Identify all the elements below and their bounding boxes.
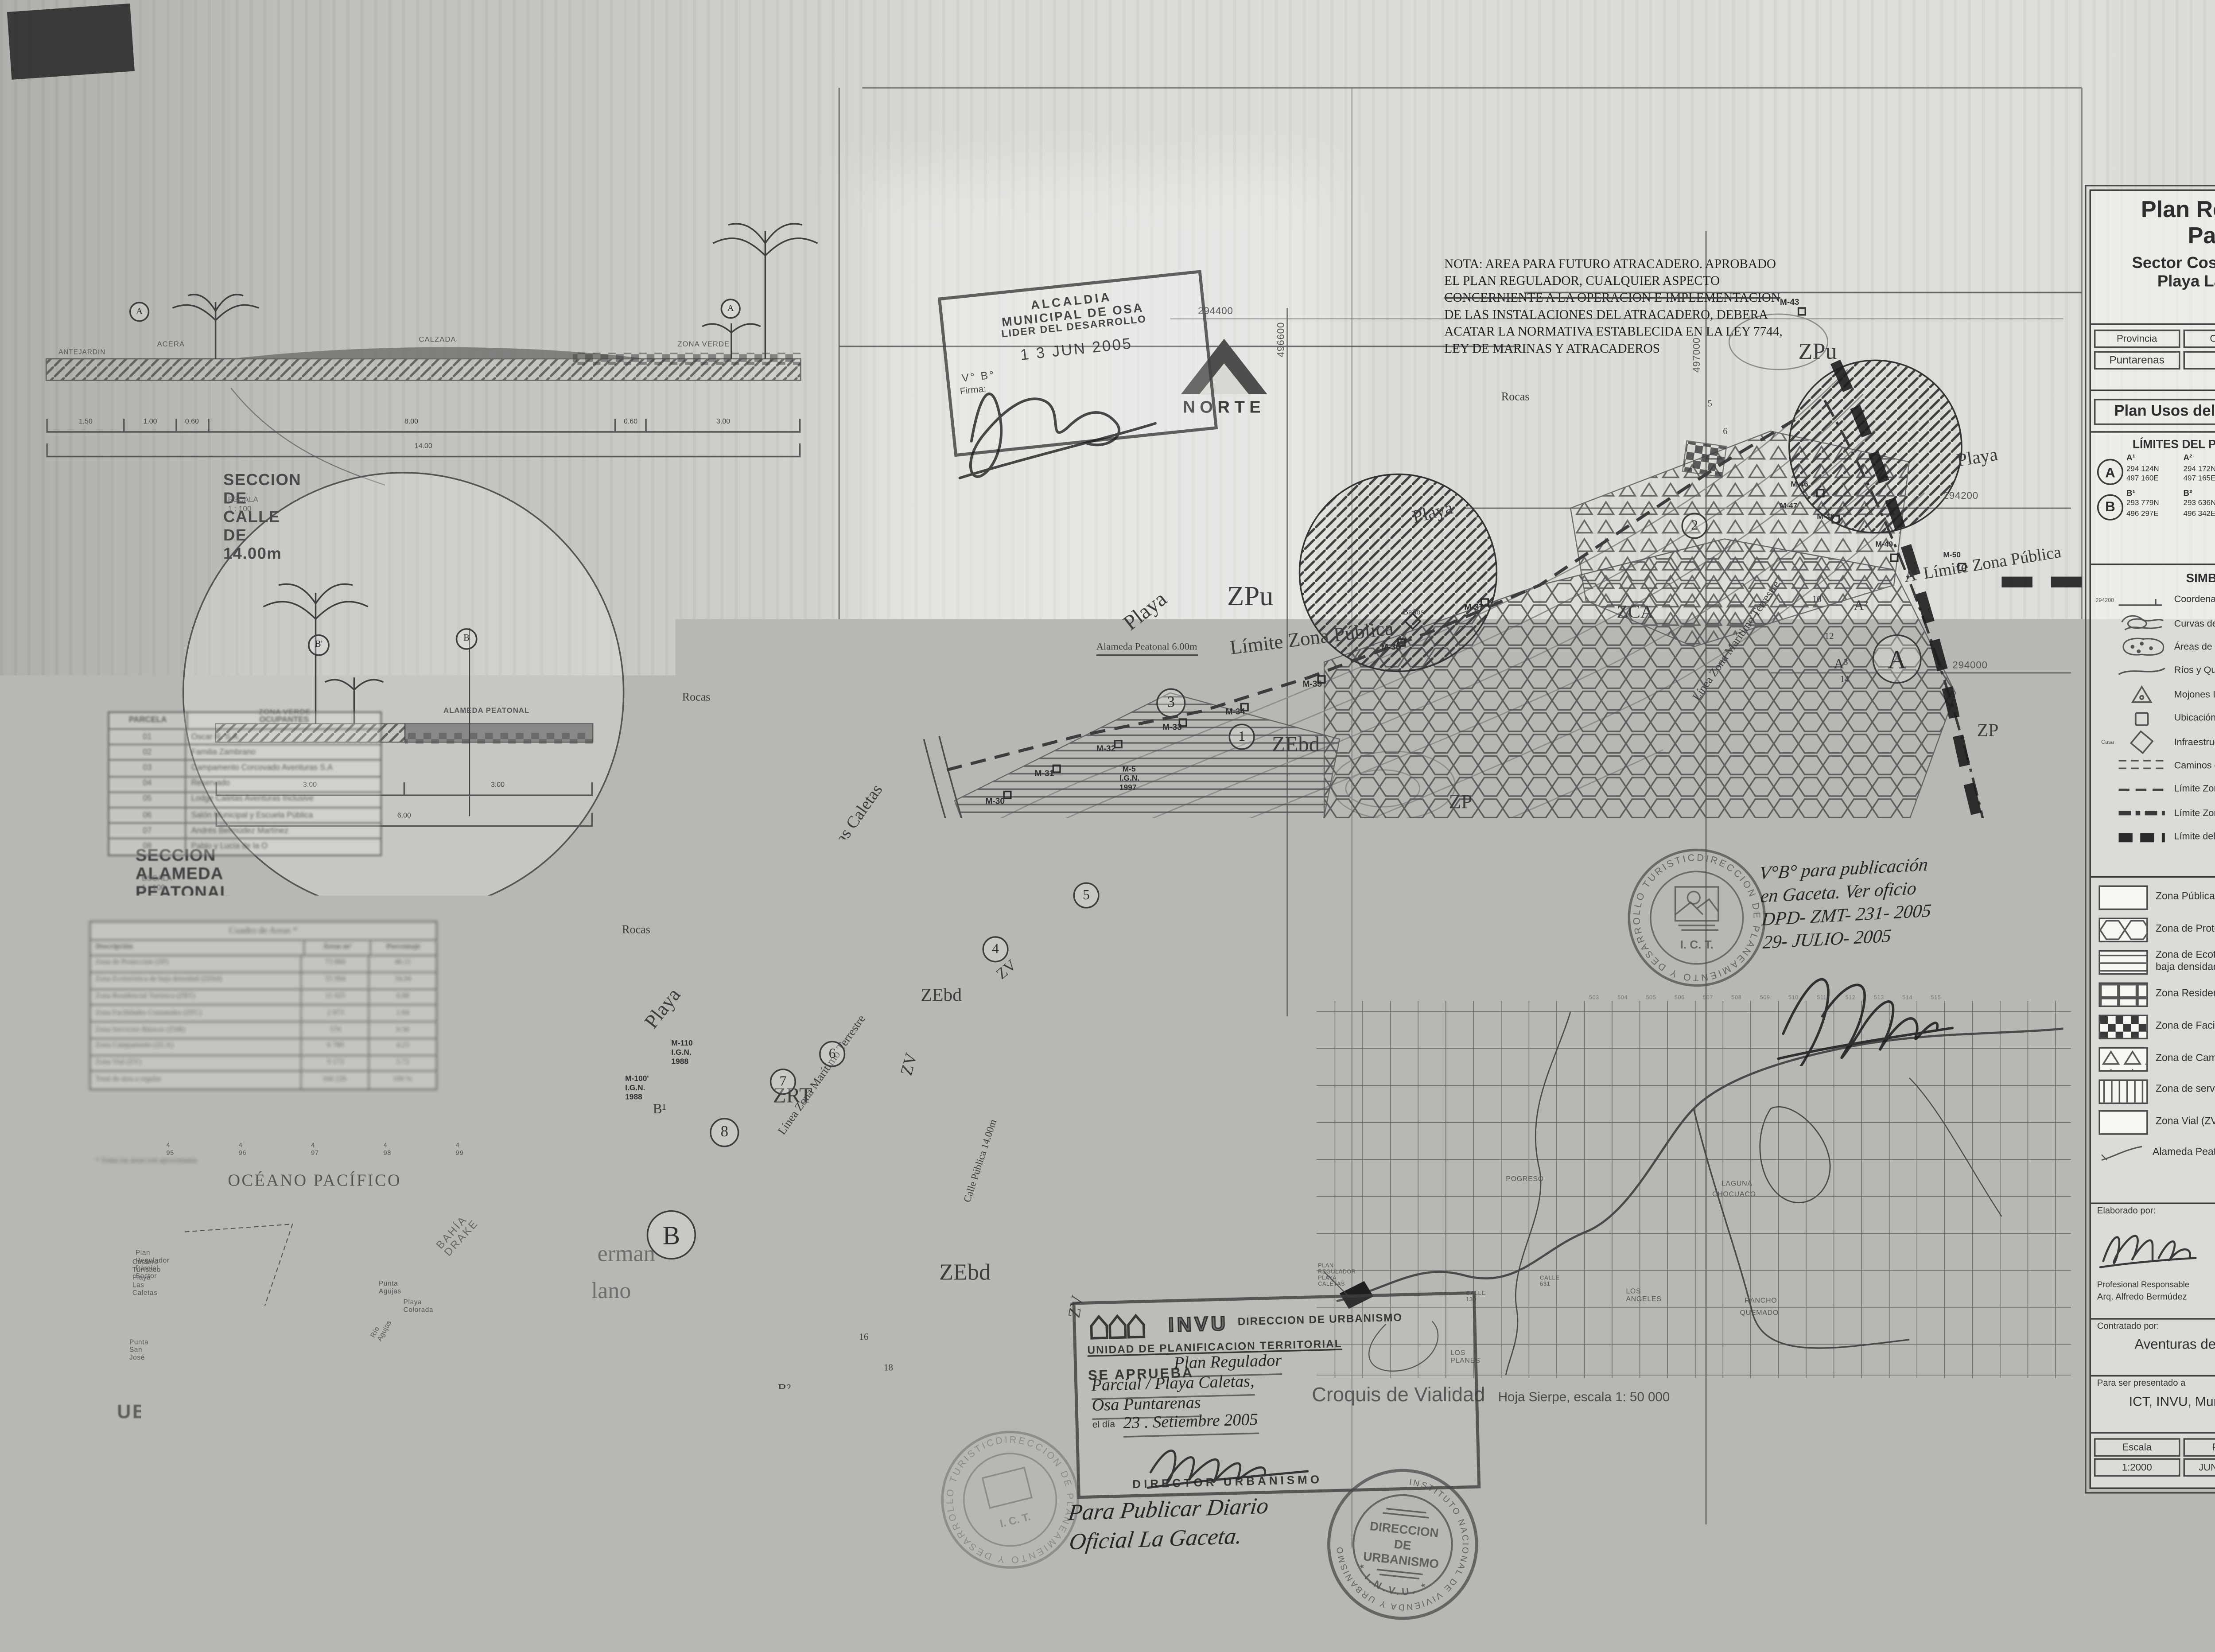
footer-header-escala: Escala <box>2094 1438 2180 1457</box>
zone-label: Zona de servicios básicos (ZSB) <box>2156 1084 2215 1097</box>
zone-legend-item: Zona Pública (ZPu) <box>2091 882 2215 914</box>
admin-value-canton: Osa <box>2183 351 2215 369</box>
map-coordinate: 294200 <box>1943 493 1978 503</box>
invu-round-stamp: INSTITUTO NACIONAL DE VIVIENDA Y URBANIS… <box>1310 1451 1496 1637</box>
area-pct: 46.11 <box>370 956 436 971</box>
alameda-legend-label: Alameda Peatonal <box>2153 1147 2215 1160</box>
map-label: lano <box>591 1281 631 1304</box>
parcela-ocupante: Pablo y Lucía de la O <box>187 840 380 854</box>
zone-swatch <box>2098 983 2148 1007</box>
areas-row: Zona Ecoturística de baja densidad (ZEbd… <box>91 971 436 987</box>
invu-brand: INVU <box>1168 1311 1229 1336</box>
map-label: ZV <box>899 1051 921 1077</box>
map-circle-marker: 2 <box>1681 513 1707 539</box>
simbologia-label: Áreas de encharcamiento <box>2174 642 2215 653</box>
map-label: Línea Zona Marítimo Terrestre <box>1690 579 1782 703</box>
parcela-id: 08 <box>109 840 187 854</box>
section-marker-a: A <box>129 302 149 322</box>
area-pct: 34.94 <box>370 973 436 988</box>
map-label: M-46 <box>1791 482 1808 490</box>
limit-point: A¹ 294 124N 497 160E <box>2126 454 2184 486</box>
elaborado-label: Elaborado por: <box>2097 1207 2215 1217</box>
limit-point: B² 293 636N 496 342E <box>2184 490 2215 521</box>
area-m2: 11 025 <box>303 989 370 1004</box>
simbologia-icon <box>2116 730 2168 755</box>
parcela-ocupante: Familia Zambrano <box>187 746 380 760</box>
areas-row: Zona de Protección (ZP) 73 860 46.11 <box>91 955 436 971</box>
zone-swatch <box>2098 1015 2148 1039</box>
zone-label-line1: Zona Vial (ZV) <box>2156 1117 2215 1130</box>
profesional-role: Profesional Responsable <box>2097 1281 2189 1291</box>
zone-label: Zona de Ecoturistica de baja densidad (Z… <box>2156 950 2215 975</box>
street-dims: 1.50 1.00 0.60 8.00 0.60 3.00 <box>46 419 801 432</box>
alcaldia-signature <box>917 333 1207 499</box>
nota-line: ACATAR LA NORMATIVA ESTABLECIDA EN LA LE… <box>1444 323 1968 340</box>
area-desc: Zona Residencial Turística (ZRT) <box>91 989 303 1004</box>
simbologia-icon <box>2116 683 2168 707</box>
simbologia-item: Áreas de encharcamiento <box>2091 636 2215 659</box>
area-desc: Zona Facilidades Comunales (ZFC) <box>91 1006 303 1021</box>
croquis-label: LOS ANGELES <box>1626 1287 1661 1303</box>
ubicacion-caption: UBICACIÓN GEOGRÁFICA Hoja Topográfica Si… <box>117 1398 601 1426</box>
ict-center-text: I. C. T. <box>1680 938 1714 951</box>
map-label: M-50 <box>1943 553 1961 560</box>
admin-header-canton: Cantón <box>2183 330 2215 348</box>
nota-line: NOTA: AREA PARA FUTURO ATRACADERO. APROB… <box>1444 256 1968 272</box>
map-circle-marker: B <box>647 1210 696 1259</box>
simbologia-item: Límite Zona Pública <box>2091 778 2215 801</box>
areas-total-label: Total de área a regular <box>91 1073 301 1088</box>
map-label: M-35 <box>1302 682 1322 691</box>
simbologia-item: 294200 Coordenadas Lambert <box>2091 588 2215 612</box>
limit-point-e: 497 160E <box>2126 476 2159 484</box>
parcela-id: 02 <box>109 746 187 760</box>
ubicacion-label: Río Agujas <box>369 1315 393 1342</box>
sheet-subtitle-line2: Playa Las Caletas <box>2091 272 2215 291</box>
street-label-acera: ACERA <box>157 342 185 350</box>
invu-center1: DIRECCION <box>1369 1519 1439 1540</box>
simbologia-label: Límite del Plan Regulador <box>2174 832 2215 842</box>
parcelas-row: 03 Campamento Corcovado Aventuras S.A <box>109 760 381 775</box>
areas-total-row: Total de área a regular 160 226 100 % <box>91 1071 436 1088</box>
invu-dia-label: el día <box>1092 1421 1115 1430</box>
zone-label-line1: Zona Pública (ZPu) <box>2156 892 2215 905</box>
zone-legend-item: Zona de servicios básicos (ZSB) <box>2091 1075 2215 1107</box>
scan-corner-mark <box>7 4 135 80</box>
sheet-title-line2: Parcial <box>2091 223 2215 249</box>
map-label: Rocas <box>622 924 650 935</box>
croquis-label: QUEMADO <box>1740 1309 1779 1316</box>
simbologia-item: Curvas de NiveL @ 2.00m <box>2091 612 2215 635</box>
profesional-name: Arq. Alfredo Bermúdez <box>2097 1294 2187 1303</box>
map-label: 12 <box>1825 633 1834 642</box>
area-m2: 9 173 <box>303 1056 370 1071</box>
ubicacion-label: BAHÍA DRAKE <box>435 1211 481 1259</box>
scanned-plan-sheet: NOTA: AREA PARA FUTURO ATRACADERO. APROB… <box>0 0 2215 1652</box>
map-label: 5 <box>1708 400 1712 410</box>
parcela-id: 03 <box>109 761 187 775</box>
limit-point-n: 293 779N <box>2126 501 2159 509</box>
ict-center-text-faint: I. C. T. <box>999 1511 1032 1530</box>
scan-white-streak <box>542 924 575 1386</box>
invu-logo <box>1085 1309 1166 1341</box>
area-m2: 6 780 <box>303 1039 370 1054</box>
areas-header-m2: Áreas m² <box>305 941 371 955</box>
map-label: ZV <box>995 958 1020 983</box>
parcela-ocupante: Andrés Bermúdez Martínez <box>187 824 380 838</box>
parcelas-header-parcela: PARCELA <box>109 713 188 728</box>
ubicacion-tick: 4 97 <box>311 1141 319 1156</box>
simbologia-icon <box>2116 801 2168 826</box>
limits-row-b: B B¹ 293 779N 496 297E B² 293 636N 49 <box>2091 490 2215 521</box>
croquis-col-number: 508 <box>1731 995 1741 1001</box>
areas-header-pct: Porcentaje <box>371 941 436 955</box>
area-pct: 1.84 <box>370 1006 436 1021</box>
simbologia-icon <box>2116 706 2168 731</box>
scan-white-streak <box>591 1078 622 1401</box>
areas-title: Cuadro de Areas * <box>91 922 436 939</box>
street-label-calzada: CALZADA <box>419 337 456 345</box>
zone-label-line1: Zona de servicios básicos (ZSB) <box>2156 1084 2215 1097</box>
area-m2: 2 973 <box>303 1006 370 1021</box>
title-block: Plan Regulador Parcial Sector Costero Tu… <box>2090 190 2215 1489</box>
map-label: ZEbd <box>921 985 962 1004</box>
map-label: M-110 <box>671 1041 692 1049</box>
deppat-signature <box>2094 1221 2202 1273</box>
map-label: 1997 <box>1119 785 1137 793</box>
street-label-zonaverde: ZONA VERDE <box>677 342 730 350</box>
zone-label-line2: baja densidad (ZEbd) <box>2156 963 2215 976</box>
plan-usos-title: Plan Usos del Suelo y Vialidad <box>2093 398 2215 424</box>
footer-value-escala: 1:2000 <box>2094 1458 2180 1477</box>
area-m2: 73 860 <box>303 956 370 971</box>
simbologia-label: Límite Zona Pública <box>2174 784 2215 795</box>
simbologia-note: 294200 <box>2095 597 2114 603</box>
alcaldia-stamp: ALCALDIA MUNICIPAL DE OSA LIDER DEL DESA… <box>938 270 1218 457</box>
map-label: Rocas <box>1501 391 1530 403</box>
map-label: A³ <box>1834 657 1848 671</box>
areas-total-m2: 160 226 <box>301 1073 369 1088</box>
map-label: ZEbd <box>1272 736 1320 758</box>
map-label: M-48 <box>1817 514 1834 522</box>
scan-white-streak <box>486 832 529 1432</box>
areas-total-pct: 100 % <box>369 1073 436 1088</box>
zone-label: Zona de Protección (ZP) <box>2156 924 2215 937</box>
map-label: I.G.N. <box>625 1085 645 1093</box>
zone-legend-item: Zona Vial (ZV) <box>2091 1107 2215 1139</box>
area-desc: Zona Ecoturística de baja densidad (ZEbd… <box>91 973 303 988</box>
zone-swatch <box>2098 1047 2148 1072</box>
map-label: M-30 <box>985 799 1005 808</box>
zone-legend-item: Zona Residencial Turística (ZRT) <box>2091 979 2215 1011</box>
croquis-col-number: 506 <box>1675 995 1685 1001</box>
map-label: ZPu <box>1227 582 1273 610</box>
zone-label-line1: Zona de Protección (ZP) <box>2156 924 2215 937</box>
area-pct: 5.72 <box>370 1056 436 1071</box>
parcela-ocupante: Salón Municipal y Escuela Pública <box>187 809 380 823</box>
map-circle-marker: 5 <box>1073 882 1100 909</box>
sheet-subtitle-line1: Sector Costero Turístico <box>2091 254 2215 272</box>
map-label: Playa <box>641 984 684 1032</box>
map-label: M-34 <box>1226 710 1245 718</box>
map-circle-marker: 8 <box>710 1118 739 1147</box>
map-label: ZPu <box>1799 342 1837 365</box>
map-label: ZCA <box>1617 602 1653 621</box>
contratado-label: Contratado por: <box>2097 1323 2215 1332</box>
map-label: M-43 <box>1780 300 1799 309</box>
map-label: M-47 <box>1780 504 1798 511</box>
map-label: Línea Zona Marítima Terrestre <box>761 1416 920 1468</box>
croquis-label: RANCHO <box>1745 1297 1777 1304</box>
svg-text:DIRECCION DE PLANEAMIENTO Y DE: DIRECCION DE PLANEAMIENTO Y DESARROLLO T… <box>1620 841 1762 983</box>
croquis-label: LAGUNA <box>1721 1179 1753 1187</box>
simbologia-label: Ubicación hipotética de mojones <box>2174 713 2215 724</box>
parcelas-row: 05 Lodge Caletas Aventuras Inclusive <box>109 791 381 807</box>
areas-table: Cuadro de Areas * Descripción Áreas m² P… <box>89 921 438 1089</box>
parcela-id: 04 <box>109 777 187 791</box>
zone-legend-item: Zona de Campamento (ZCA) <box>2091 1043 2215 1075</box>
limit-point-e: 496 342E <box>2184 511 2215 519</box>
areas-row: Zona Facilidades Comunales (ZFC) 2 973 1… <box>91 1004 436 1021</box>
sheet-title-line1: Plan Regulador <box>2091 197 2215 223</box>
limit-point-id: A¹ <box>2126 454 2135 463</box>
alameda-label-right: ALAMEDA PEATONAL <box>443 708 529 716</box>
simbologia-icon <box>2116 777 2168 802</box>
zone-label: Zona Vial (ZV) <box>2156 1117 2215 1130</box>
simbologia-label: Infraestructura existente <box>2174 737 2215 747</box>
zone-legend-item: Zona de Facilidades Comunales (ZFC) <box>2091 1011 2215 1043</box>
ubicacion-tick: 4 99 <box>456 1141 464 1156</box>
simbologia-item: Caminos existentes <box>2091 754 2215 777</box>
area-pct: 6.88 <box>370 989 436 1004</box>
simbologia-item: Casa Infraestructura existente <box>2091 731 2215 754</box>
simbologia-item: Mojones I.G.N. <box>2091 683 2215 707</box>
map-label: A' Límite Zona Pública <box>1903 545 2063 587</box>
zone-swatch <box>2098 950 2148 975</box>
footer-value-fecha: JUNIO 2005 <box>2183 1458 2215 1477</box>
limit-point-e: 497 165E <box>2184 476 2215 484</box>
map-label: 14 <box>1840 676 1849 685</box>
simbologia-heading: SIMBOLOGÍA <box>2091 571 2215 585</box>
parcela-ocupante: Lodge Caletas Aventuras Inclusive <box>187 793 380 807</box>
alameda-legend-item: Alameda Peatonal <box>2091 1139 2215 1168</box>
parcelas-row: 02 Familia Zambrano <box>109 744 381 759</box>
limit-point-id: B¹ <box>2126 490 2135 499</box>
parcelas-header-ocupantes: OCUPANTES <box>188 713 380 728</box>
areas-footnote: * Todas las áreas son aproximadas <box>95 1158 197 1166</box>
map-label: 1988 <box>671 1059 688 1067</box>
nota-line: LEY DE MARINAS Y ATRACADEROS <box>1444 340 1968 357</box>
zone-label-line1: Zona Residencial Turística (ZRT) <box>2156 989 2215 1002</box>
simbologia-label: Coordenadas Lambert <box>2174 595 2215 605</box>
croquis-label: CHOCUACO <box>1712 1190 1756 1198</box>
map-label: Quebrada Caletas <box>1383 827 1473 892</box>
area-pct: 4.23 <box>370 1039 436 1054</box>
area-desc: Zona de Protección (ZP) <box>91 956 303 971</box>
footer-header-fecha: Fecha <box>2183 1438 2215 1457</box>
limit-point-n: 293 636N <box>2184 501 2215 509</box>
section-marker-a: A <box>721 299 741 319</box>
map-label: B² <box>777 1383 791 1396</box>
map-label: Baños <box>1403 610 1424 618</box>
ict-stamp: DIRECCION DE PLANEAMIENTO Y DESARROLLO T… <box>1620 841 1774 995</box>
map-circle-marker: 6 <box>819 1041 845 1067</box>
parcela-id: 06 <box>109 809 187 823</box>
croquis-label: POGRESO <box>1506 1175 1544 1182</box>
map-label: I.G.N. <box>1119 776 1139 784</box>
nota-line: EL PLAN REGULADOR, CUALQUIER ASPECTO <box>1444 272 1968 289</box>
map-circle-marker: A <box>1872 634 1921 684</box>
contratado-value: Aventuras de Corcovado S.A. <box>2091 1337 2215 1352</box>
vobo-note: V°B° para publicación en Gaceta. Ver ofi… <box>1759 850 2001 1088</box>
parcela-ocupante: Oscar R. S.A. <box>187 730 380 744</box>
parcelas-row: 06 Salón Municipal y Escuela Pública <box>109 807 381 822</box>
map-coordinate: 294000 <box>1952 662 1988 672</box>
section-marker-bprime: B' <box>308 634 330 656</box>
limit-circle-a: A <box>2097 459 2123 485</box>
map-label: ZPu <box>878 906 913 927</box>
ubicacion-label: Costero Turístico Playa Las Caletas <box>132 1258 161 1297</box>
street-section-title: SECCION DE CALLE DE 14.00m <box>223 471 301 564</box>
areas-header-desc: Descripción <box>91 941 305 955</box>
map-label: M-32 <box>1096 747 1116 755</box>
area-desc: Zona Campamento (ZCA) <box>91 1039 303 1054</box>
parcelas-row: 08 Pablo y Lucía de la O <box>109 838 381 854</box>
zone-label: Zona de Campamento (ZCA) <box>2156 1053 2215 1065</box>
areas-row: Zona Campamento (ZCA) 6 780 4.23 <box>91 1038 436 1054</box>
map-label: 6 <box>1723 428 1727 437</box>
simbologia-icon <box>2116 611 2168 636</box>
street-section-scale: ESCALA 1 : 100 <box>228 496 258 514</box>
map-label: M-36 <box>1381 645 1401 653</box>
limits-heading: LÍMITES DEL PLAN REGULADOR <box>2091 437 2215 451</box>
map-label: M-100' <box>625 1077 649 1084</box>
simbologia-label: Límite Zona Marítimo Terrestre <box>2174 808 2215 819</box>
ubicacion-title: UBICACIÓN GEOGRÁFICA <box>117 1401 392 1423</box>
croquis-col-number: 504 <box>1617 995 1628 1001</box>
ubicacion-label: Playa Colorada <box>404 1298 434 1314</box>
gaceta-note: Para Publicar Diario Oficial La Gaceta. <box>1068 1493 1270 1558</box>
croquis-subtitle: Hoja Sierpe, escala 1: 50 000 <box>1498 1389 1670 1404</box>
vobo-signature <box>1764 945 2001 1081</box>
map-label: 16 <box>859 1333 868 1343</box>
limit-point-e: 496 297E <box>2126 511 2159 519</box>
limit-point: A² 294 172N 497 165E <box>2184 454 2215 486</box>
map-label: ZP <box>1977 721 1999 739</box>
map-label: ZP <box>1449 792 1473 812</box>
nota-line: DE LAS INSTALACIONES DEL ATRACADERO, DEB… <box>1444 307 1968 323</box>
area-m2: 570 <box>303 1022 370 1038</box>
map-circle-marker: 7 <box>770 1069 796 1095</box>
invu-center3: URBANISMO <box>1363 1549 1440 1571</box>
map-label: 18 <box>884 1364 893 1373</box>
alameda-section-scale: ESCALA 1 : 100 <box>142 875 172 893</box>
parcela-ocupante: Campamento Corcovado Aventuras S.A <box>187 761 380 775</box>
parcelas-table: PARCELA OCUPANTES 01 Oscar R. S.A. 02 Fa… <box>108 711 382 855</box>
map-label: Calle Pública 14.00m <box>964 1119 1000 1204</box>
parcelas-row: 01 Oscar R. S.A. <box>109 728 381 744</box>
zone-label-line1: Zona de Facilidades Comunales (ZFC) <box>2156 1021 2215 1034</box>
croquis-col-number: 503 <box>1589 995 1599 1001</box>
zone-label: Zona Pública (ZPu) <box>2156 892 2215 905</box>
map-label: M-49 <box>1875 542 1893 549</box>
limit-point-n: 294 124N <box>2126 466 2159 474</box>
areas-row: Zona Vial (ZV) 9 173 5.72 <box>91 1054 436 1071</box>
ict-ring-text: DIRECCION DE PLANEAMIENTO Y DESARROLLO T… <box>1620 841 1762 983</box>
presentado-label: Para ser presentado a <box>2097 1380 2215 1389</box>
zone-swatch <box>2098 886 2148 911</box>
zone-label-line1: Zona de Campamento (ZCA) <box>2156 1053 2215 1065</box>
map-label: Límite Zona Pública <box>1229 618 1395 657</box>
simbologia-label: Mojones I.G.N. <box>2174 689 2215 700</box>
map-label: A² <box>1854 599 1868 613</box>
admin-value-provincia: Puntarenas <box>2094 351 2180 369</box>
map-label: Playa <box>1411 498 1455 526</box>
zone-legend-item: Zona de Ecoturistica de baja densidad (Z… <box>2091 946 2215 979</box>
map-label: 1988 <box>625 1095 642 1102</box>
parcela-id: 07 <box>109 824 187 838</box>
parcela-id: 05 <box>109 793 187 807</box>
ubicacion-subtitle: Hoja Topográfica Sierpe. Escala 1:50000 … <box>407 1412 601 1421</box>
areas-row: Zona Servicios Básicos (ZSB) 570 0.36 <box>91 1021 436 1038</box>
croquis-label: CALLE 631 <box>1540 1275 1560 1287</box>
parcelas-row: 07 Andrés Bermúdez Martínez <box>109 822 381 838</box>
zone-swatch <box>2098 1111 2148 1135</box>
alameda-curve-icon <box>2098 1143 2145 1164</box>
zone-label: Zona de Facilidades Comunales (ZFC) <box>2156 1021 2215 1034</box>
area-desc: Zona Vial (ZV) <box>91 1056 303 1071</box>
map-label: Playa <box>1121 590 1172 636</box>
presentado-value: ICT, INVU, Municipalidad de Osa <box>2091 1394 2215 1409</box>
zone-label: Zona Residencial Turística (ZRT) <box>2156 989 2215 1002</box>
simbologia-icon <box>2116 825 2168 850</box>
invu-direccion: DIRECCION DE URBANISMO <box>1237 1312 1403 1327</box>
map-label: Rocas <box>682 692 711 703</box>
ubicacion-tick: 4 98 <box>383 1141 391 1156</box>
zone-swatch <box>2098 1079 2148 1104</box>
map-label: Playa Las Caletas <box>804 782 886 890</box>
ubicacion-tick: 4 96 <box>239 1141 247 1156</box>
area-m2: 55 994 <box>303 973 370 988</box>
ocean-label: OCÉANO PACÍFICO <box>228 1173 401 1190</box>
simbologia-label: Caminos existentes <box>2174 761 2215 771</box>
scan-edge-mark <box>19 1595 58 1617</box>
limit-circle-b: B <box>2097 494 2123 520</box>
croquis-col-number: 507 <box>1703 995 1713 1001</box>
map-label: ZEbd <box>939 1263 991 1286</box>
croquis-label: PLAN REGULADOR PLAYA CALETAS <box>1318 1263 1356 1287</box>
zone-label-line1: Zona de Ecoturistica de <box>2156 950 2215 963</box>
admin-header-provincia: Provincia <box>2094 330 2180 348</box>
street-section-drawing <box>46 224 817 380</box>
map-label: I.G.N. <box>671 1050 691 1057</box>
section-marker-b: B <box>456 628 478 650</box>
parcela-ocupante: Reservado <box>187 777 380 791</box>
map-label: ZEbd <box>1075 836 1116 855</box>
street-total-dim: 14.00 <box>46 443 801 457</box>
map-label: M-37 <box>1464 605 1484 614</box>
simbologia-note: Casa <box>2095 739 2114 745</box>
area-desc: Zona Servicios Básicos (ZSB) <box>91 1022 303 1038</box>
map-label: Alameda Peatonal 6.00m <box>1096 644 1197 655</box>
map-label: erman <box>598 1244 655 1267</box>
zone-legend-item: Zona de Protección (ZP) <box>2091 914 2215 946</box>
ubicacion-label: Punta San José <box>129 1338 148 1361</box>
area-pct: 0.36 <box>370 1022 436 1038</box>
simbologia-item: Límite del Plan Regulador <box>2091 825 2215 849</box>
map-label: M-5 <box>1123 767 1136 774</box>
nota-block: NOTA: AREA PARA FUTURO ATRACADERO. APROB… <box>1444 256 1968 357</box>
